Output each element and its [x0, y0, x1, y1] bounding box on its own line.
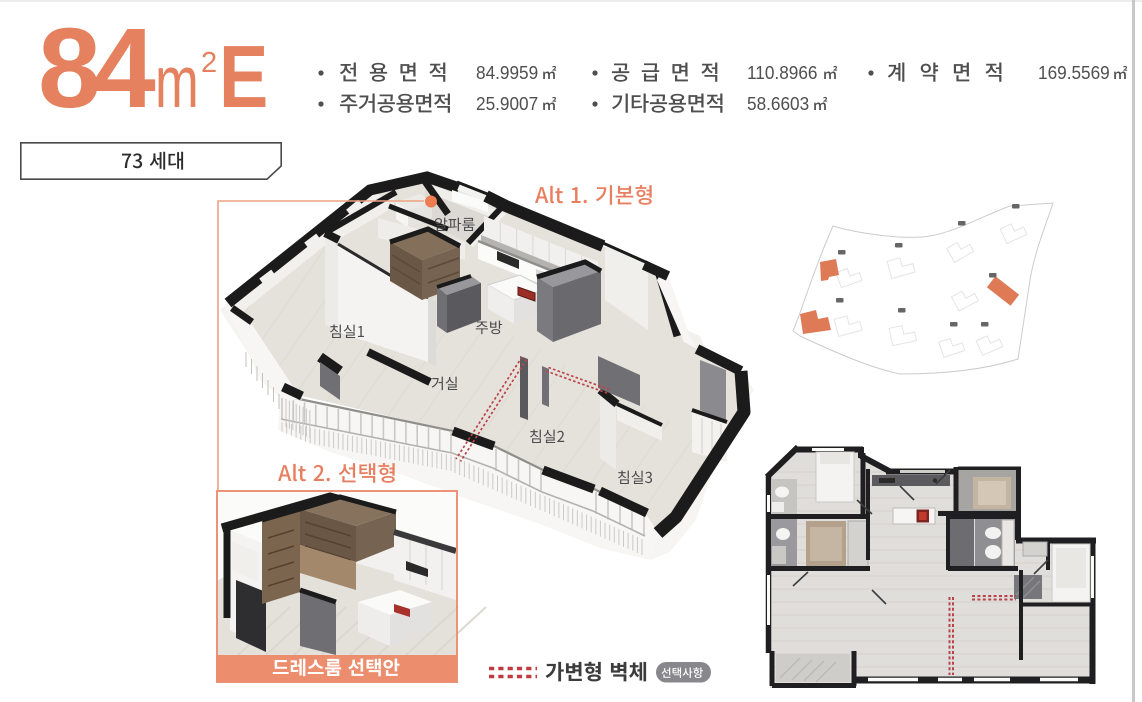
svg-text:84.9959: 84.9959 — [476, 62, 538, 83]
svg-text:110.8966: 110.8966 — [747, 62, 818, 83]
svg-text:2: 2 — [201, 47, 217, 79]
svg-text:84: 84 — [38, 5, 156, 131]
svg-text:169.5569: 169.5569 — [1038, 62, 1110, 83]
svg-text:58.6603: 58.6603 — [747, 93, 809, 114]
svg-text:m: m — [155, 42, 199, 123]
svg-text:25.9007: 25.9007 — [476, 93, 538, 114]
svg-text:E: E — [219, 28, 268, 127]
